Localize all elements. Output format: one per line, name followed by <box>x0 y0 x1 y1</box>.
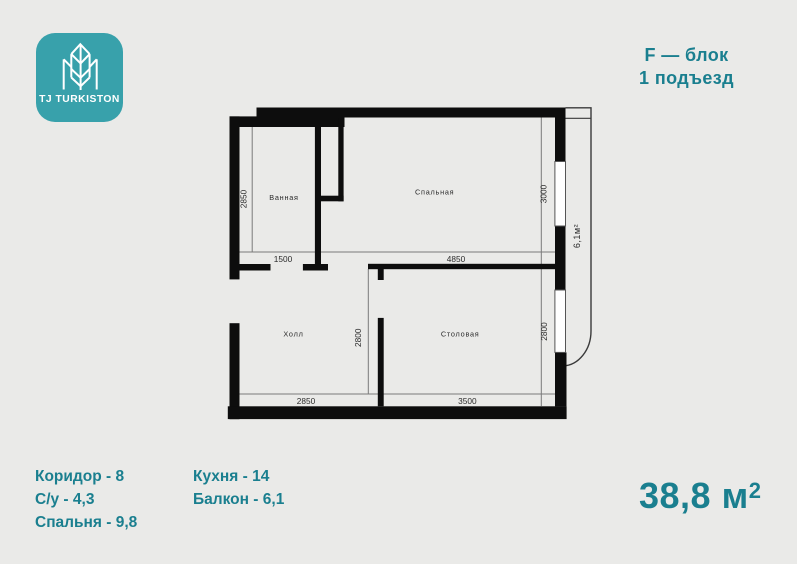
svg-text:Столовая: Столовая <box>441 329 480 338</box>
svg-text:4850: 4850 <box>447 254 466 264</box>
svg-text:2850: 2850 <box>297 396 316 406</box>
svg-text:2800: 2800 <box>353 328 363 347</box>
svg-text:2850: 2850 <box>239 189 249 208</box>
svg-text:Ванная: Ванная <box>269 193 299 202</box>
svg-text:Спальная: Спальная <box>415 187 454 196</box>
svg-text:Холл: Холл <box>283 330 303 339</box>
svg-text:2800: 2800 <box>539 322 549 341</box>
svg-text:3000: 3000 <box>539 184 549 203</box>
svg-text:6,1м²: 6,1м² <box>572 224 582 248</box>
svg-text:3500: 3500 <box>458 396 477 406</box>
svg-text:1500: 1500 <box>274 254 293 264</box>
